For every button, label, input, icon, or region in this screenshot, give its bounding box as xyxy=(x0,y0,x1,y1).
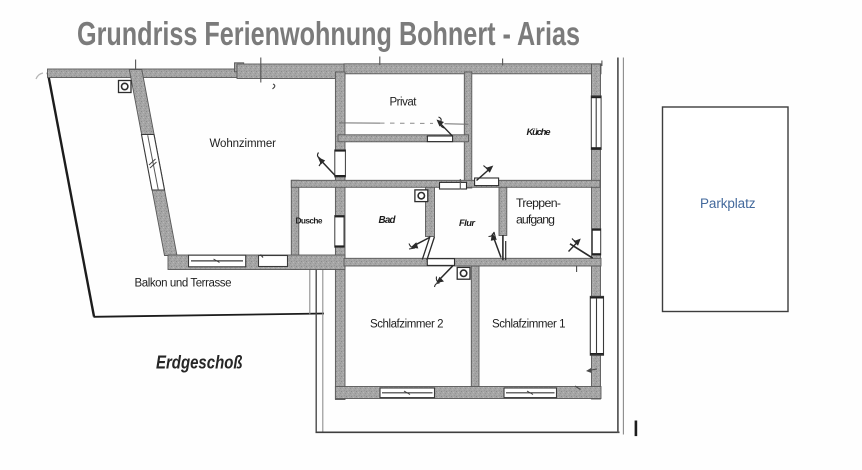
svg-text:Balkon und Terrasse: Balkon und Terrasse xyxy=(135,278,232,290)
svg-text:Erdgeschoß: Erdgeschoß xyxy=(156,353,243,373)
svg-text:Treppen-: Treppen- xyxy=(516,196,561,210)
svg-text:Privat: Privat xyxy=(390,97,418,109)
svg-text:Flur: Flur xyxy=(459,218,476,228)
svg-text:Schlafzimmer 1: Schlafzimmer 1 xyxy=(492,319,566,331)
svg-text:Schlafzimmer 2: Schlafzimmer 2 xyxy=(370,319,444,331)
svg-text:aufgang: aufgang xyxy=(516,213,555,227)
svg-text:Wohnzimmer: Wohnzimmer xyxy=(210,138,277,150)
svg-text:Küche: Küche xyxy=(527,127,552,138)
svg-text:Grundriss Ferienwohnung Bohner: Grundriss Ferienwohnung Bohnert - Arias xyxy=(77,15,580,52)
svg-text:Bad: Bad xyxy=(379,215,397,226)
svg-text:Dusche: Dusche xyxy=(296,215,323,225)
svg-text:Parkplatz: Parkplatz xyxy=(700,196,756,211)
